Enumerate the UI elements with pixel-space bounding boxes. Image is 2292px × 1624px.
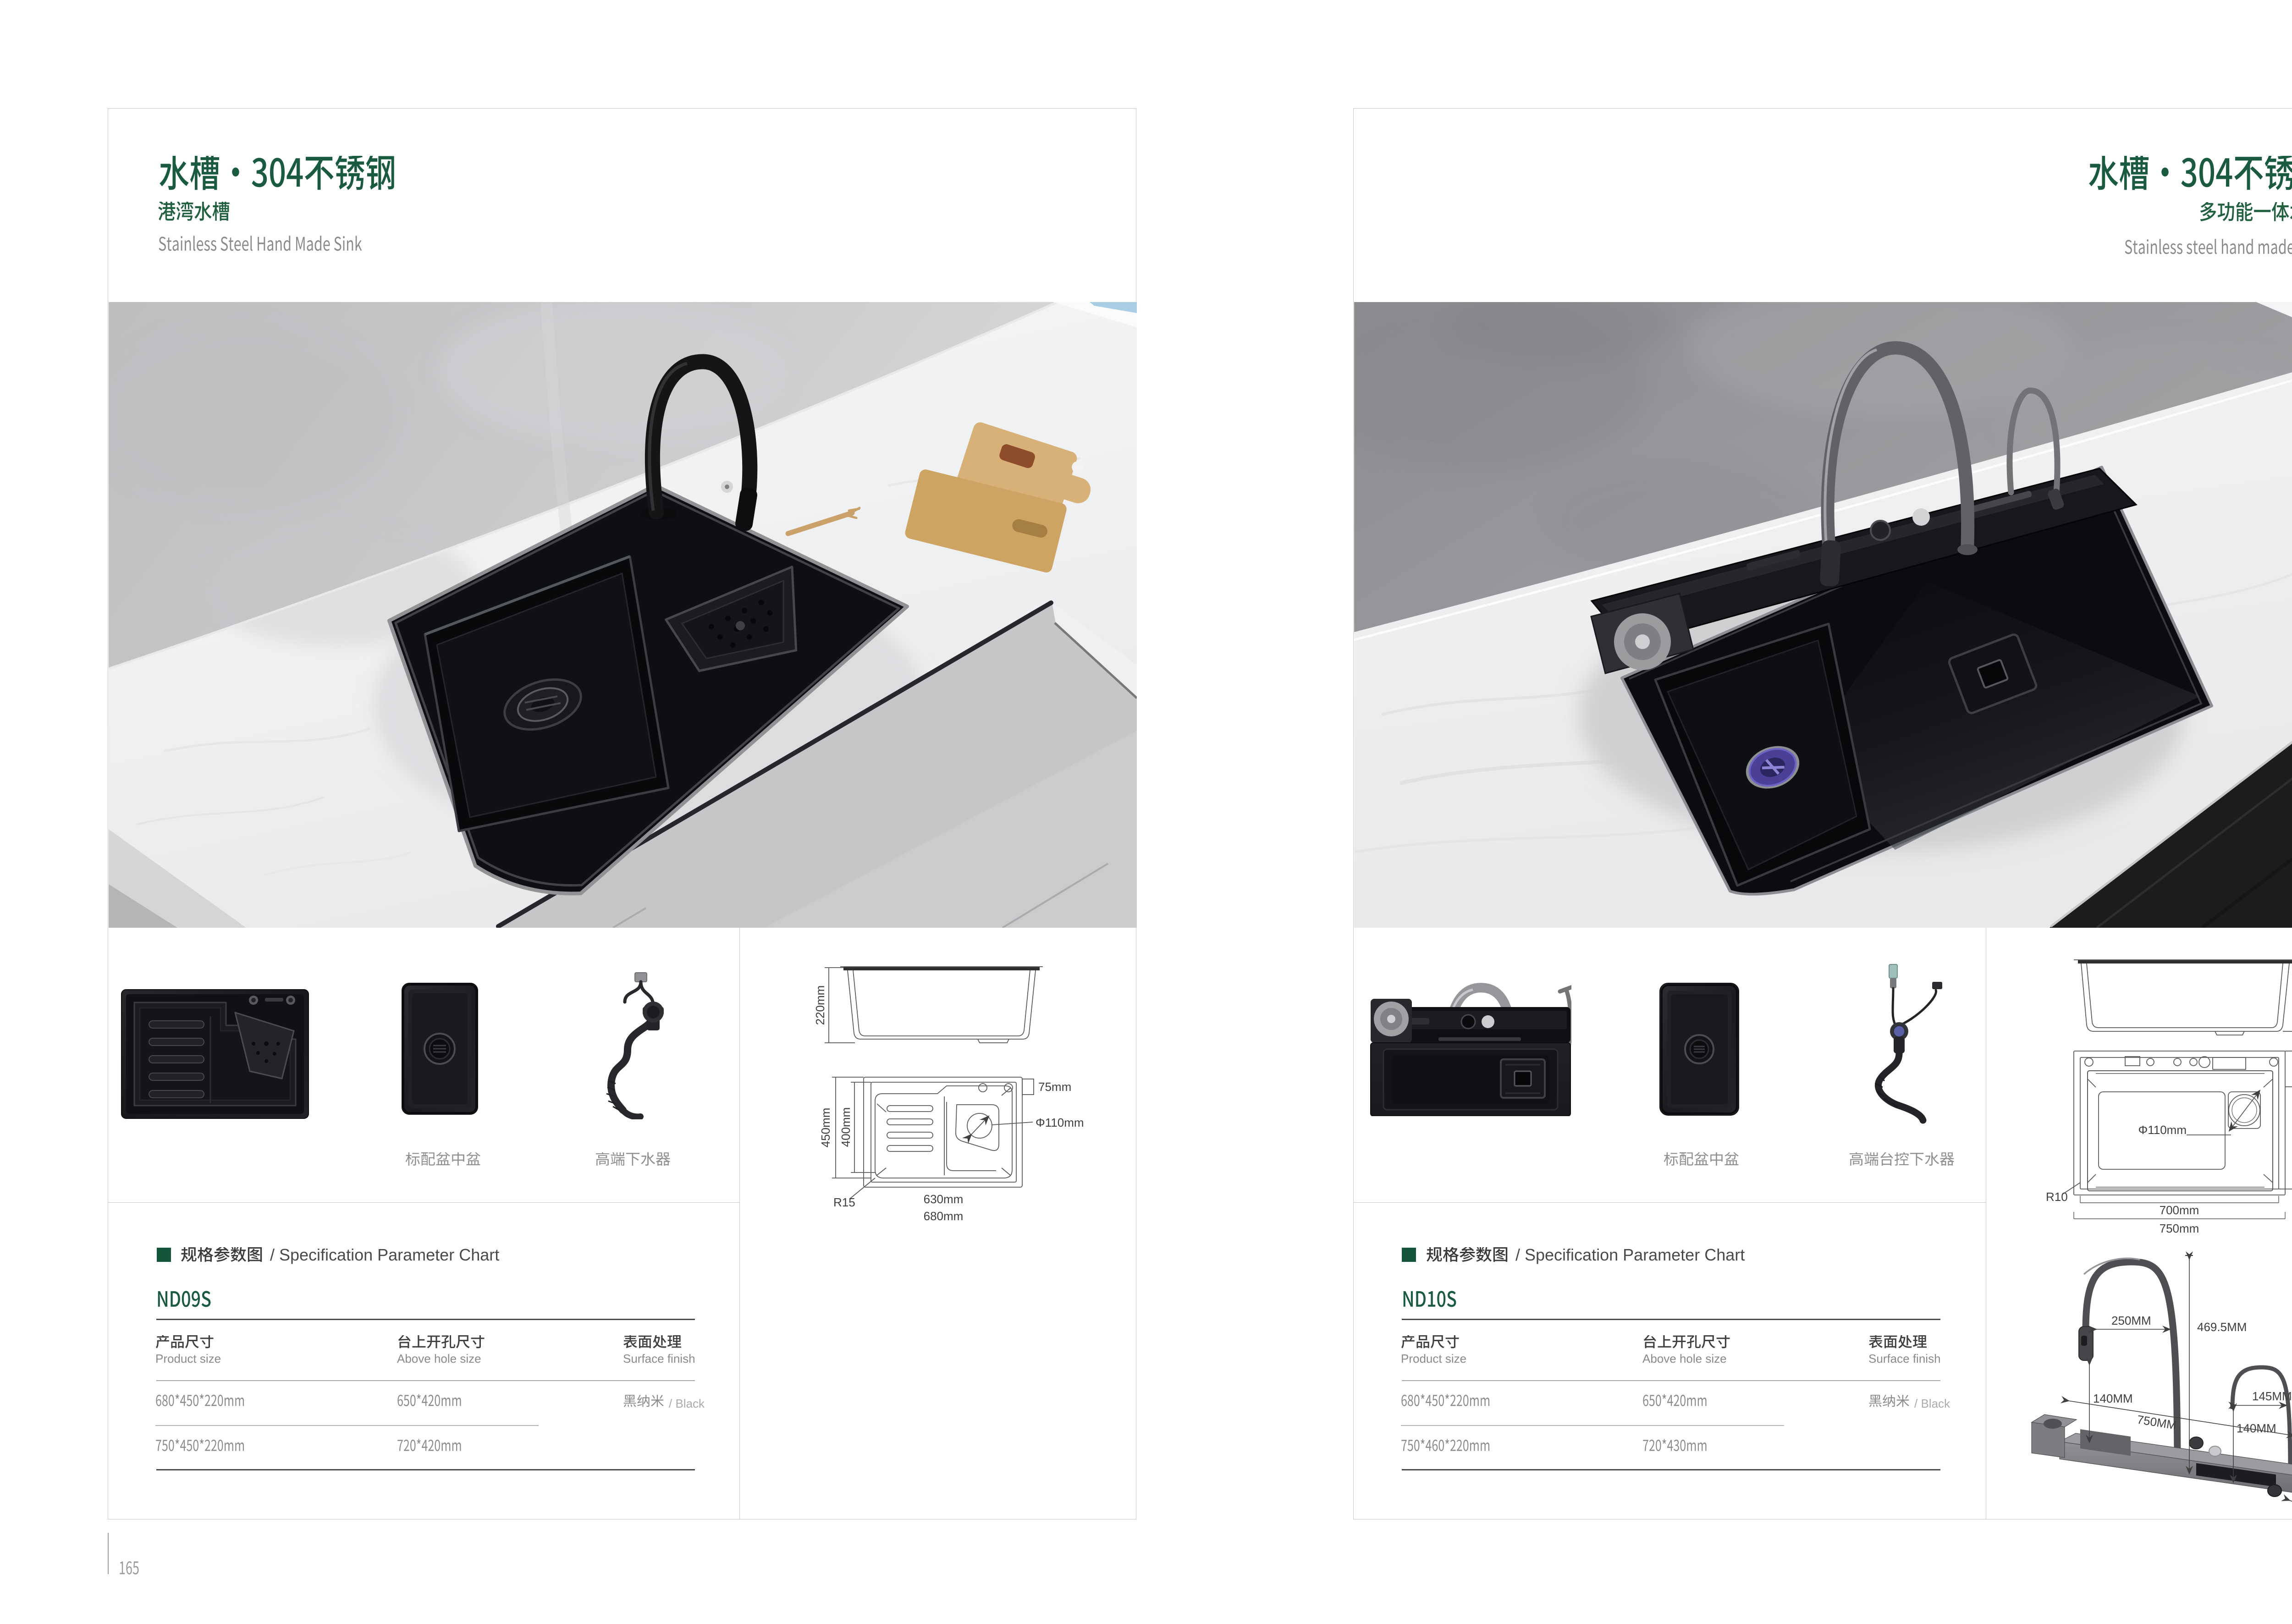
svg-text:140MM: 140MM xyxy=(2237,1421,2276,1435)
svg-text:680mm: 680mm xyxy=(924,1209,964,1223)
svg-text:145MM: 145MM xyxy=(2252,1389,2292,1403)
svg-text:220mm: 220mm xyxy=(813,985,827,1025)
svg-text:R10: R10 xyxy=(2046,1190,2068,1204)
svg-text:700mm: 700mm xyxy=(2160,1203,2199,1217)
svg-text:630mm: 630mm xyxy=(924,1192,964,1206)
svg-text:400mm: 400mm xyxy=(839,1107,853,1147)
svg-text:750MM: 750MM xyxy=(2136,1412,2177,1432)
svg-text:140MM: 140MM xyxy=(2093,1392,2133,1405)
svg-text:469.5MM: 469.5MM xyxy=(2197,1320,2247,1334)
svg-text:Φ110mm: Φ110mm xyxy=(2138,1123,2187,1137)
svg-text:450mm: 450mm xyxy=(819,1108,832,1148)
svg-text:75mm: 75mm xyxy=(1038,1080,1071,1094)
svg-text:250MM: 250MM xyxy=(2111,1314,2151,1327)
svg-text:750mm: 750mm xyxy=(2160,1222,2199,1235)
svg-text:R15: R15 xyxy=(833,1195,855,1209)
svg-text:Φ110mm: Φ110mm xyxy=(1036,1116,1084,1129)
